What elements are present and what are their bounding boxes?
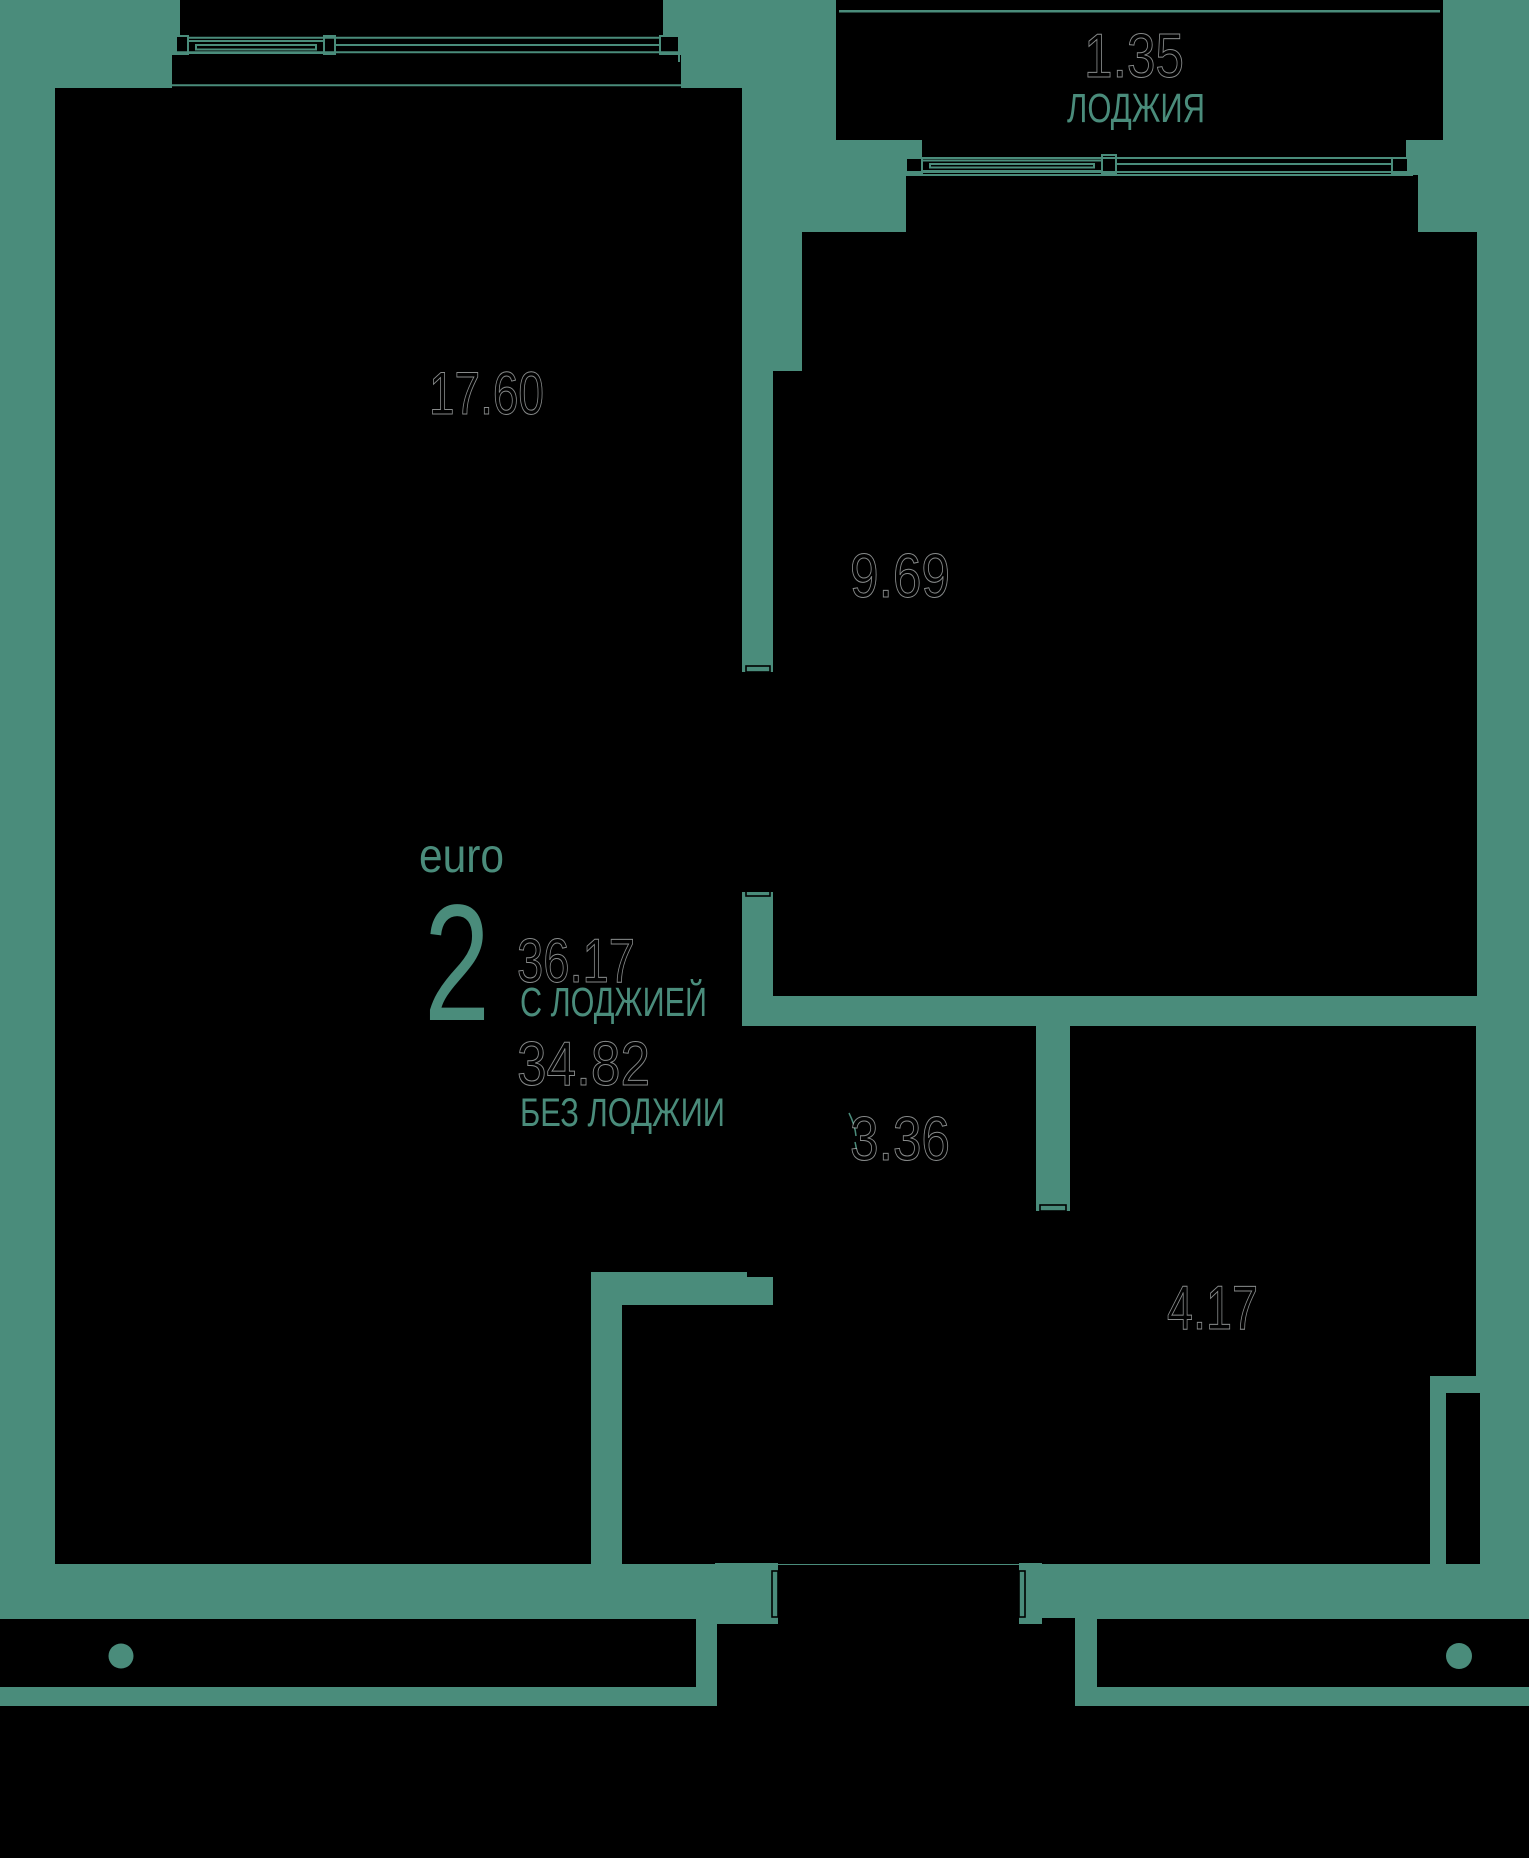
svg-text:4.17: 4.17	[1167, 1274, 1258, 1343]
svg-text:С ЛОДЖИЕЙ: С ЛОДЖИЕЙ	[520, 979, 707, 1025]
svg-text:34.82: 34.82	[517, 1030, 650, 1099]
svg-text:9.69: 9.69	[850, 542, 950, 611]
svg-text:ЛОДЖИЯ: ЛОДЖИЯ	[1067, 85, 1205, 131]
svg-text:БЕЗ ЛОДЖИИ: БЕЗ ЛОДЖИИ	[520, 1091, 725, 1135]
svg-text:17.60: 17.60	[429, 360, 544, 427]
svg-text:1.35: 1.35	[1084, 22, 1184, 91]
svg-text:3.36: 3.36	[850, 1105, 950, 1174]
svg-text:2: 2	[424, 871, 490, 1056]
